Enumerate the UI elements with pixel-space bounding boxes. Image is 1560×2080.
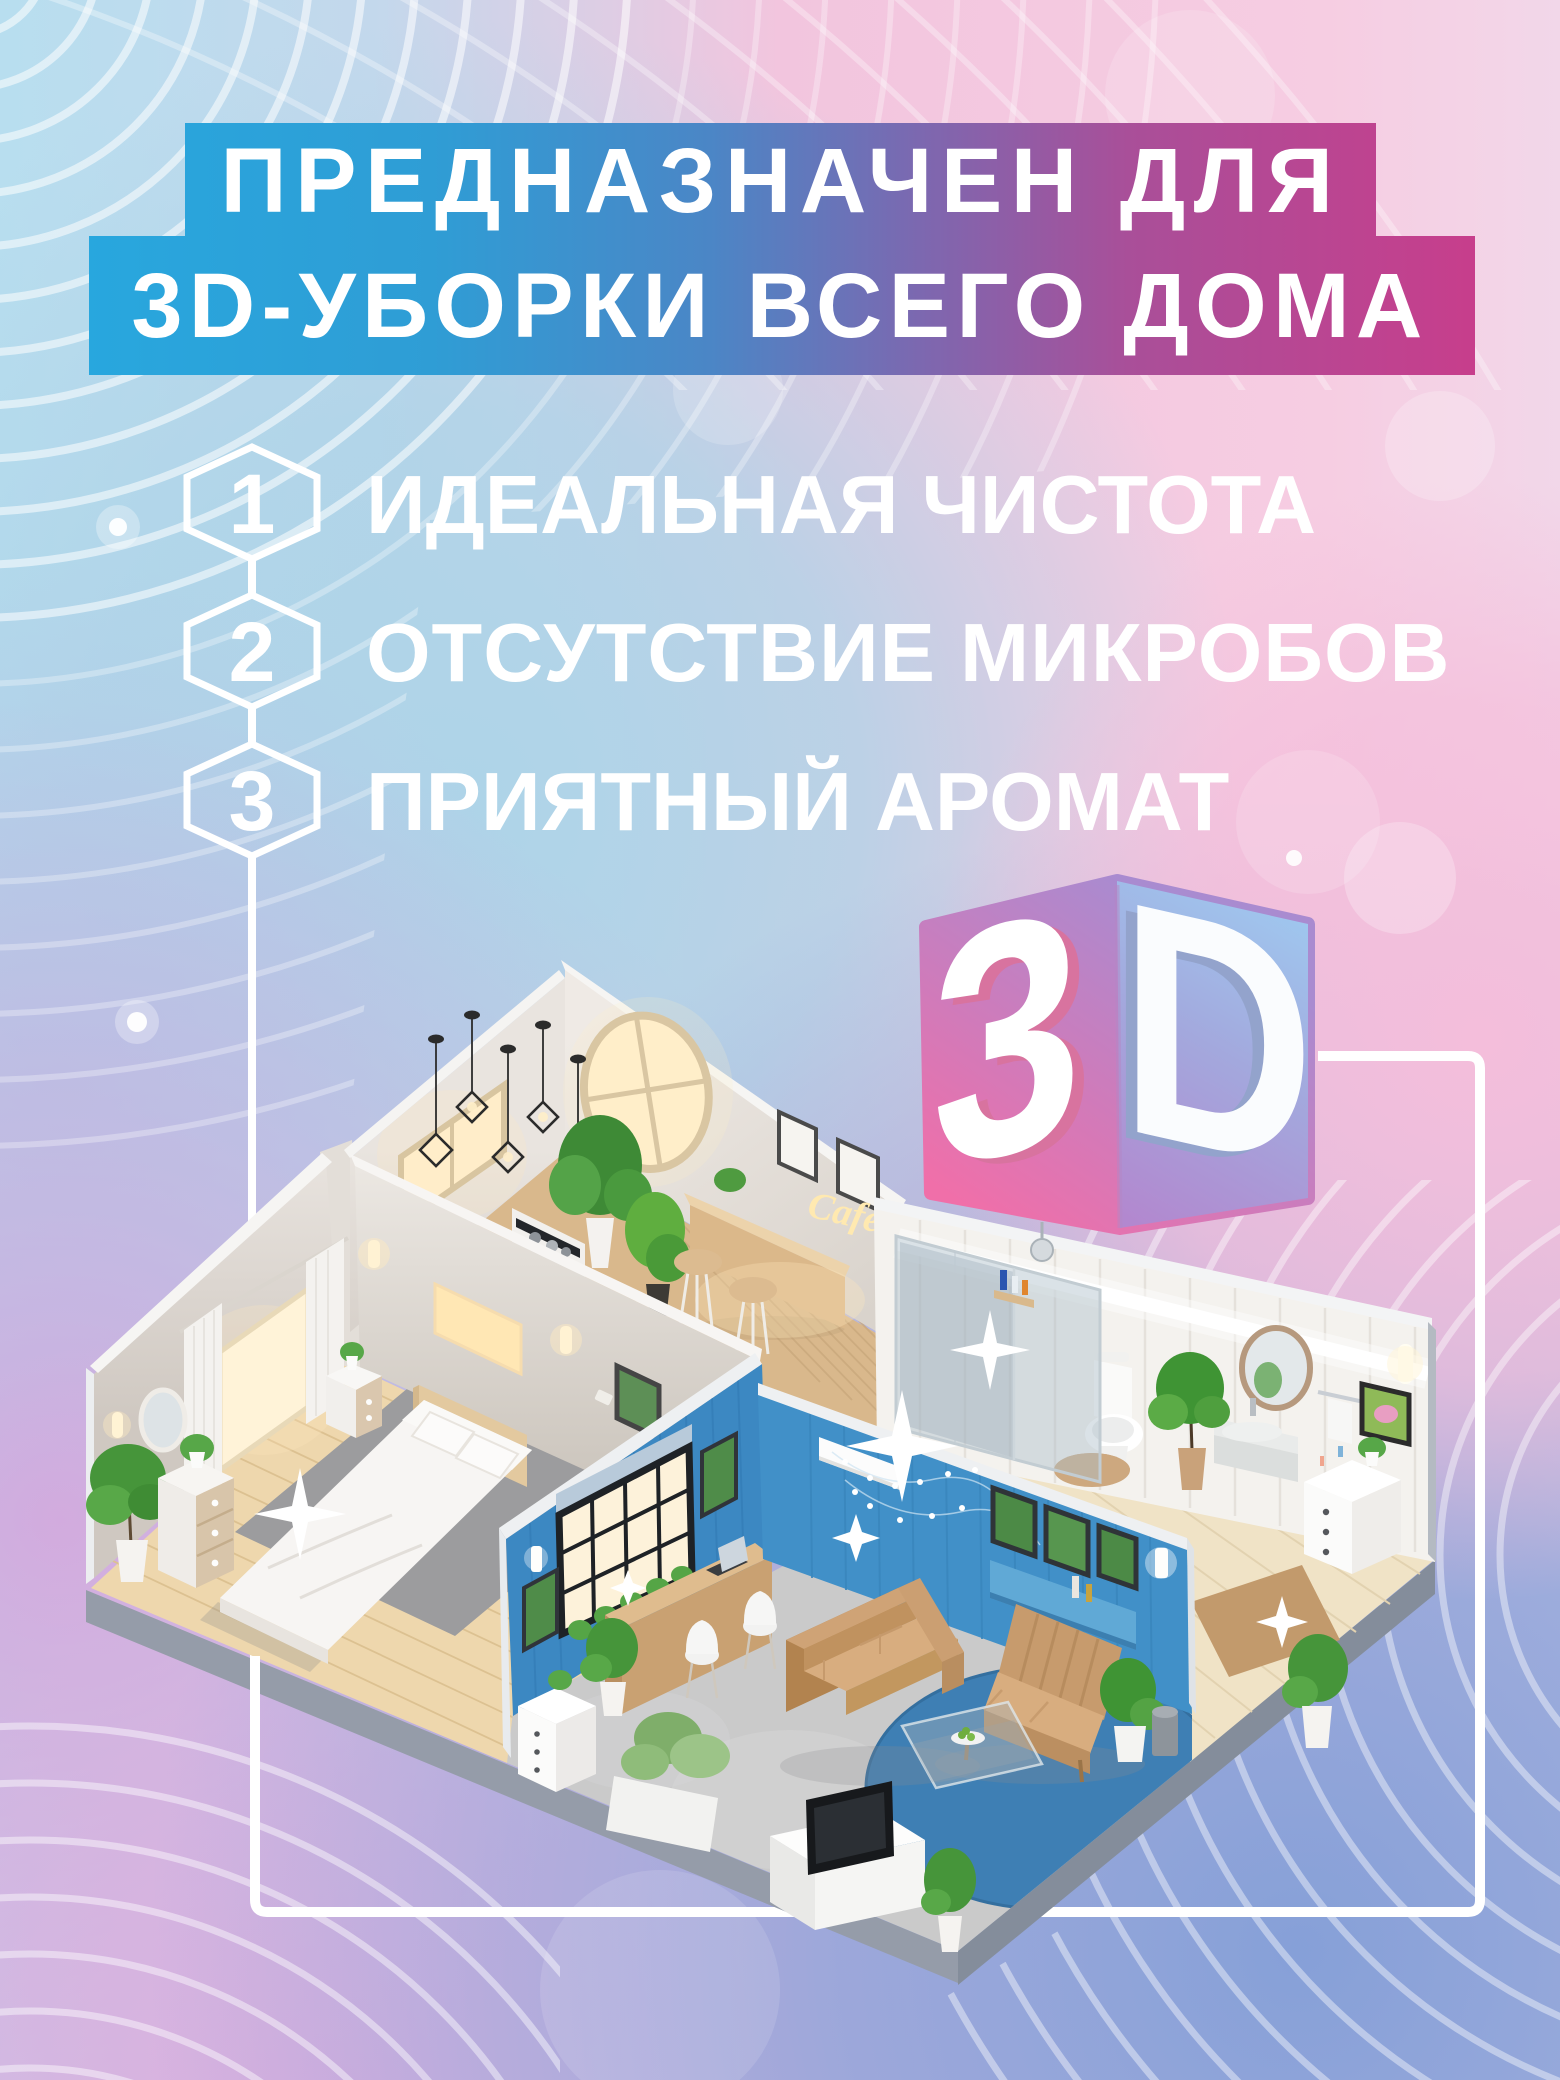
svg-text:3: 3 (229, 754, 276, 848)
svg-text:1: 1 (229, 457, 276, 551)
svg-text:3D-УБОРКИ ВСЕГО ДОМА: 3D-УБОРКИ ВСЕГО ДОМА (131, 255, 1428, 357)
svg-text:ПРЕДНАЗНАЧЕН ДЛЯ: ПРЕДНАЗНАЧЕН ДЛЯ (220, 130, 1341, 232)
svg-text:ОТСУТСТВИЕ МИКРОБОВ: ОТСУТСТВИЕ МИКРОБОВ (366, 606, 1450, 699)
svg-text:2: 2 (229, 605, 276, 699)
svg-text:ПРИЯТНЫЙ АРОМАТ: ПРИЯТНЫЙ АРОМАТ (366, 754, 1229, 848)
svg-text:3: 3 (932, 836, 1082, 1241)
svg-text:ИДЕАЛЬНАЯ ЧИСТОТА: ИДЕАЛЬНАЯ ЧИСТОТА (366, 458, 1316, 551)
svg-text:D: D (1119, 829, 1314, 1242)
